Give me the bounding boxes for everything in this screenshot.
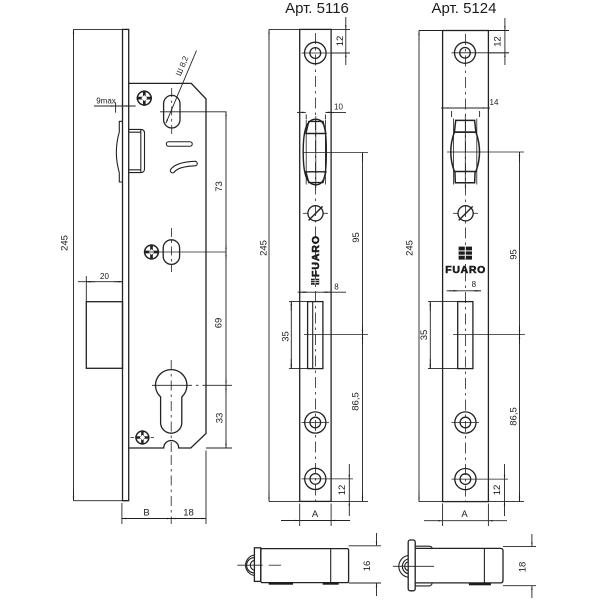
svg-text:10: 10 <box>334 103 343 112</box>
svg-text:12: 12 <box>492 485 503 496</box>
svg-text:16: 16 <box>362 561 373 572</box>
svg-text:A: A <box>461 509 468 520</box>
svg-text:86,5: 86,5 <box>508 407 519 426</box>
svg-text:33: 33 <box>215 413 226 424</box>
svg-text:Арт. 5116: Арт. 5116 <box>285 0 349 17</box>
svg-text:95: 95 <box>508 249 519 260</box>
svg-text:9max: 9max <box>96 97 116 106</box>
svg-text:35: 35 <box>281 331 292 342</box>
svg-text:245: 245 <box>60 235 71 251</box>
svg-text:8: 8 <box>334 283 339 292</box>
svg-text:12: 12 <box>335 36 346 47</box>
svg-text:18: 18 <box>517 562 528 573</box>
svg-text:95: 95 <box>351 232 362 243</box>
svg-text:14: 14 <box>490 98 499 107</box>
svg-text:Ш 8,2: Ш 8,2 <box>174 54 191 77</box>
svg-text:FUARO: FUARO <box>310 236 322 277</box>
svg-text:8: 8 <box>472 280 477 289</box>
svg-text:245: 245 <box>405 240 416 256</box>
svg-text:69: 69 <box>214 318 225 329</box>
svg-text:35: 35 <box>419 330 430 341</box>
svg-text:18: 18 <box>183 508 194 519</box>
svg-text:73: 73 <box>214 181 225 192</box>
svg-text:A: A <box>312 509 319 520</box>
svg-text:B: B <box>143 508 149 519</box>
svg-text:245: 245 <box>259 240 270 256</box>
svg-text:86,5: 86,5 <box>351 392 362 411</box>
svg-text:12: 12 <box>337 485 348 496</box>
svg-text:20: 20 <box>100 272 109 281</box>
svg-text:FUARO: FUARO <box>445 264 485 276</box>
svg-text:Арт. 5124: Арт. 5124 <box>432 0 497 17</box>
svg-text:12: 12 <box>492 36 503 47</box>
